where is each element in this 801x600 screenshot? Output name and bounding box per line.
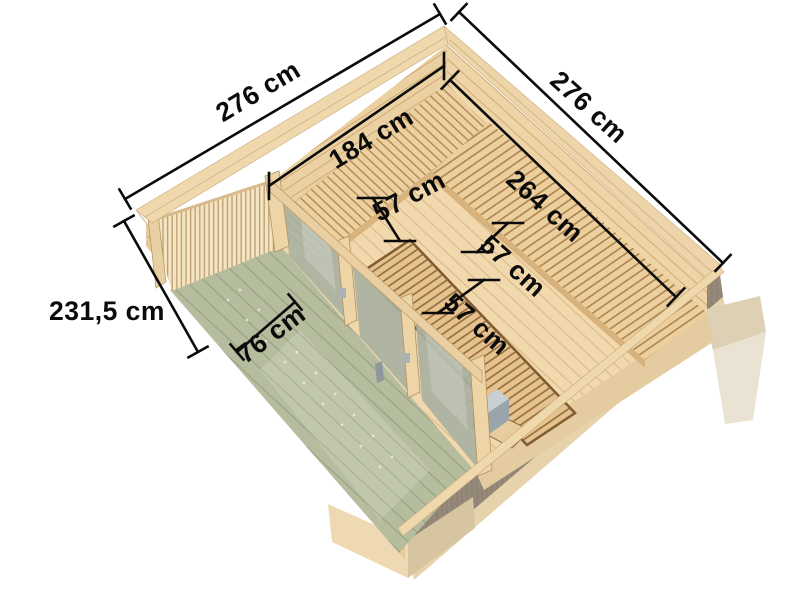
sauna-dimension-diagram: 276 cm 276 cm 184 cm 264 cm 57 cm 57 cm … xyxy=(0,0,801,600)
sauna-3d-view: 276 cm 276 cm 184 cm 264 cm 57 cm 57 cm … xyxy=(0,0,801,600)
label-height: 231,5 cm xyxy=(49,296,165,326)
door-hinge-bottom xyxy=(404,353,410,363)
door-hinge-top xyxy=(340,288,346,298)
